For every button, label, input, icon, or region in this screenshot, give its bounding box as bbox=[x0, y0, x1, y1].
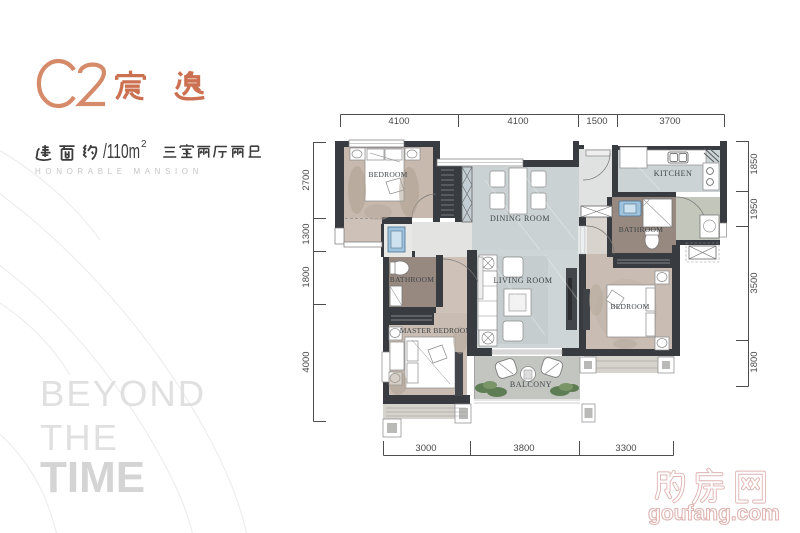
svg-text:4000: 4000 bbox=[301, 351, 312, 372]
svg-text:BEDROOM: BEDROOM bbox=[369, 170, 408, 179]
svg-text:BEDROOM: BEDROOM bbox=[611, 302, 650, 311]
svg-text:TIME: TIME bbox=[40, 453, 145, 502]
svg-text:THE: THE bbox=[40, 417, 119, 458]
svg-text:4100: 4100 bbox=[388, 116, 409, 127]
svg-text:/110m: /110m bbox=[103, 141, 140, 163]
svg-text:2: 2 bbox=[141, 139, 147, 150]
svg-text:DINING ROOM: DINING ROOM bbox=[490, 214, 550, 223]
svg-text:3500: 3500 bbox=[749, 272, 760, 293]
svg-text:1300: 1300 bbox=[301, 223, 312, 244]
svg-text:1800: 1800 bbox=[301, 266, 312, 287]
svg-text:3800: 3800 bbox=[513, 443, 534, 454]
svg-text:3300: 3300 bbox=[615, 443, 636, 454]
svg-text:1850: 1850 bbox=[749, 153, 760, 174]
svg-text:goufang.com: goufang.com bbox=[648, 502, 780, 525]
svg-text:3700: 3700 bbox=[659, 116, 680, 127]
svg-text:HONORABLE MANSION: HONORABLE MANSION bbox=[35, 167, 203, 176]
svg-text:BATHROOM: BATHROOM bbox=[390, 275, 435, 284]
svg-text:BATHROOM: BATHROOM bbox=[619, 225, 664, 234]
svg-text:MASTER BEDROOM: MASTER BEDROOM bbox=[400, 326, 473, 335]
svg-text:1800: 1800 bbox=[749, 351, 760, 372]
svg-text:BEYOND: BEYOND bbox=[40, 373, 206, 414]
svg-text:KITCHEN: KITCHEN bbox=[654, 169, 693, 178]
svg-text:4100: 4100 bbox=[507, 116, 528, 127]
svg-text:LIVING ROOM: LIVING ROOM bbox=[493, 276, 552, 285]
svg-text:1500: 1500 bbox=[586, 116, 607, 127]
svg-text:BALCONY: BALCONY bbox=[510, 380, 552, 389]
svg-text:1950: 1950 bbox=[749, 198, 760, 219]
svg-text:2700: 2700 bbox=[301, 169, 312, 190]
svg-text:3000: 3000 bbox=[415, 443, 436, 454]
